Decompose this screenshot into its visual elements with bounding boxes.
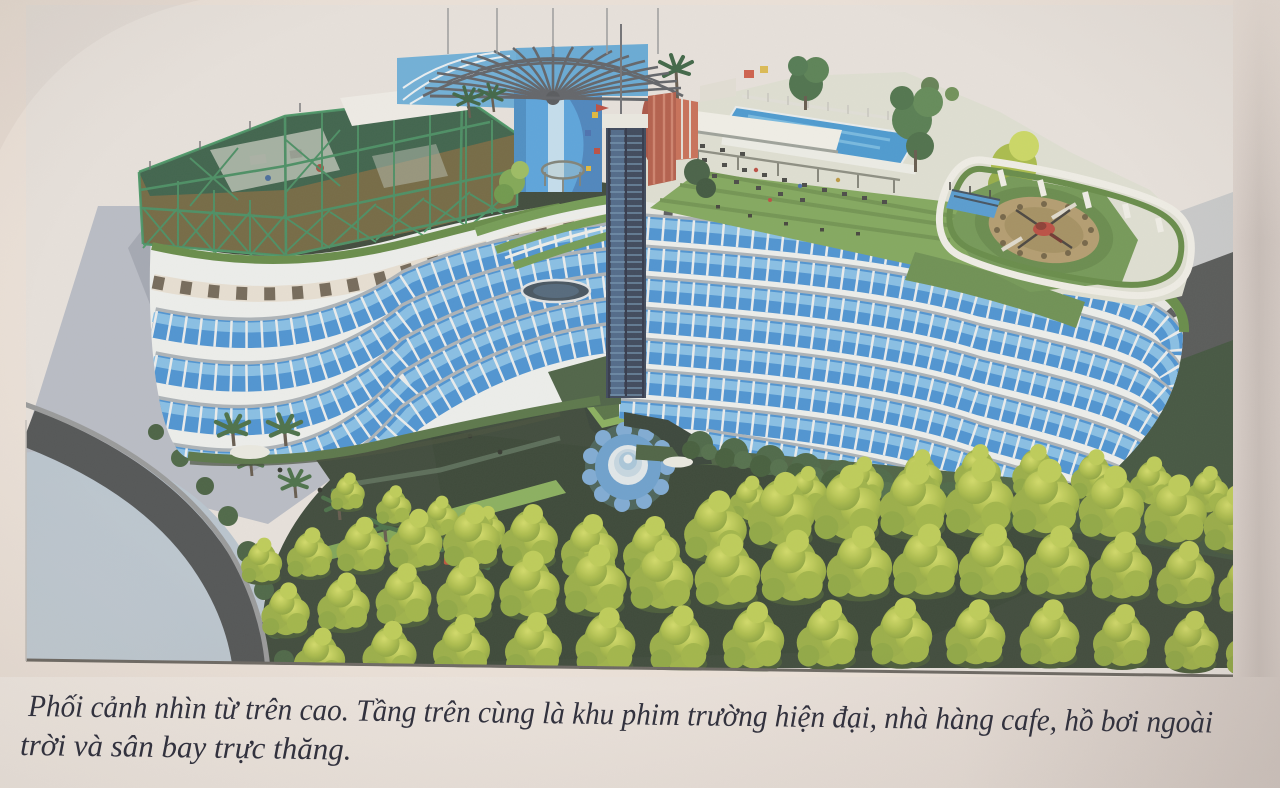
- svg-text:trời và sân bay trực thăng.: trời và sân bay trực thăng.: [20, 727, 352, 767]
